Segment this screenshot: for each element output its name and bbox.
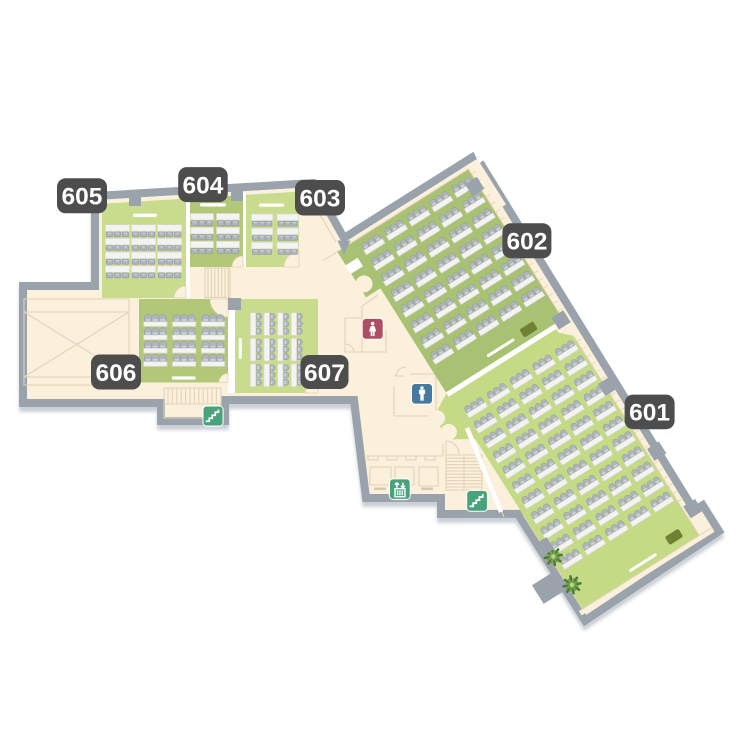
svg-text:601: 601	[629, 400, 670, 427]
svg-text:602: 602	[506, 229, 547, 256]
svg-text:607: 607	[304, 360, 345, 387]
svg-text:604: 604	[183, 172, 224, 199]
svg-text:606: 606	[96, 360, 137, 387]
svg-text:603: 603	[300, 186, 341, 213]
svg-text:605: 605	[62, 184, 103, 211]
